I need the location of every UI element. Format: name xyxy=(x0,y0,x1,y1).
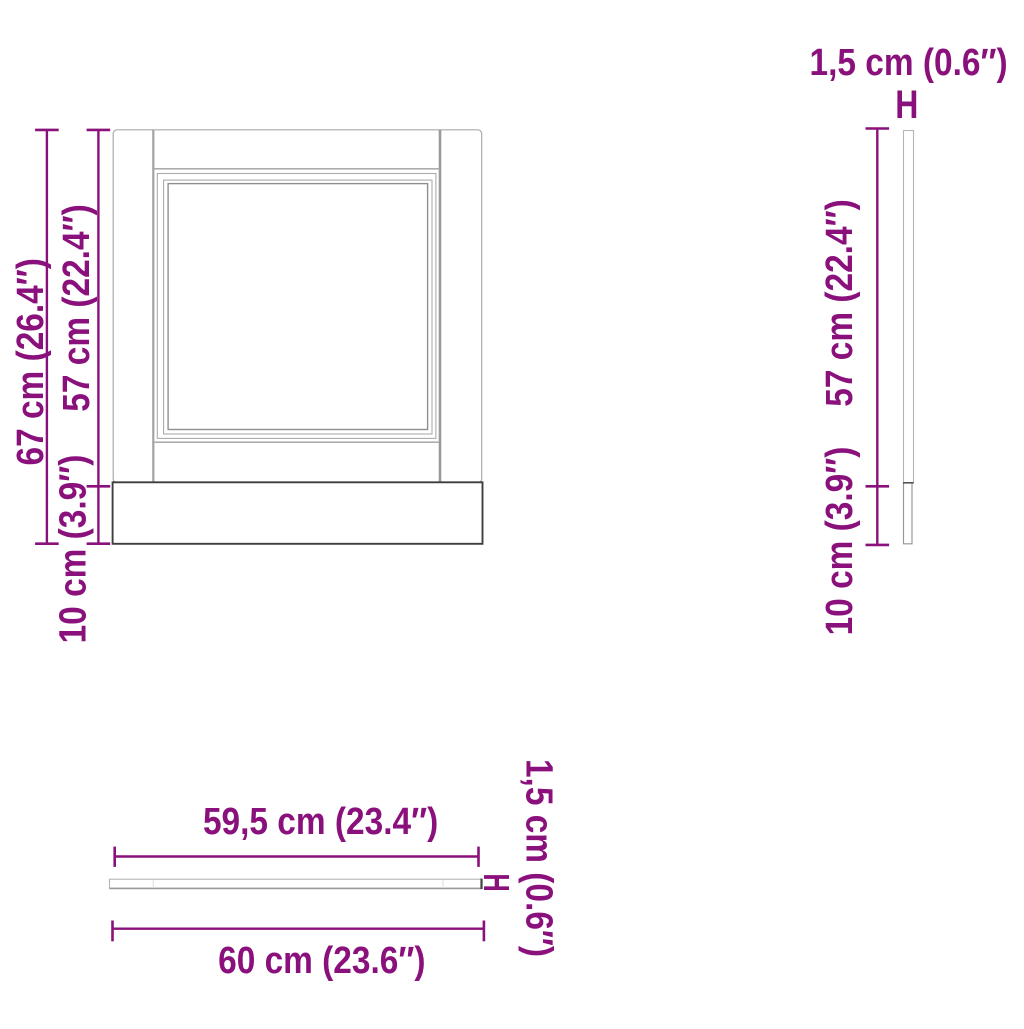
svg-text:57 cm (22.4″): 57 cm (22.4″) xyxy=(818,199,860,406)
svg-text:1,5 cm (0.6″): 1,5 cm (0.6″) xyxy=(518,759,560,957)
svg-text:60 cm (23.6″): 60 cm (23.6″) xyxy=(218,939,425,981)
svg-text:H: H xyxy=(895,82,918,127)
svg-text:10 cm (3.9″): 10 cm (3.9″) xyxy=(52,455,94,644)
svg-text:1,5 cm (0.6″): 1,5 cm (0.6″) xyxy=(810,41,1008,83)
svg-text:H: H xyxy=(476,874,517,892)
svg-text:59,5 cm (23.4″): 59,5 cm (23.4″) xyxy=(203,800,438,842)
svg-text:10 cm (3.9″): 10 cm (3.9″) xyxy=(818,447,860,636)
svg-text:57 cm (22.4″): 57 cm (22.4″) xyxy=(55,204,97,411)
svg-text:67 cm (26.4″): 67 cm (26.4″) xyxy=(9,258,51,465)
